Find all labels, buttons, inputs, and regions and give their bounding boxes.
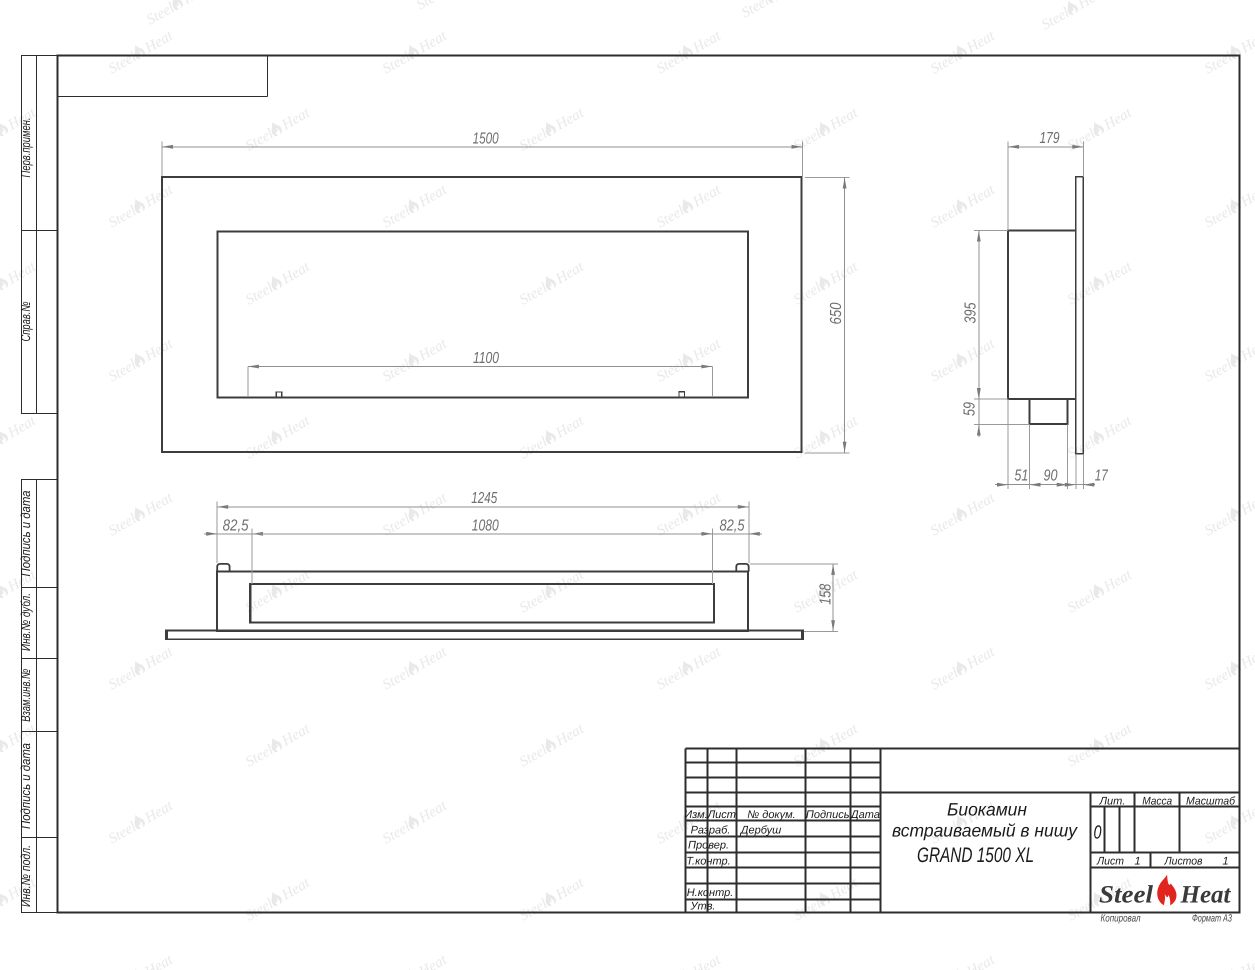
svg-text:Разраб.: Разраб. xyxy=(691,824,731,836)
svg-text:Утв.: Утв. xyxy=(690,901,716,913)
svg-text:Лист: Лист xyxy=(1096,855,1124,867)
svg-text:Формат А3: Формат А3 xyxy=(1192,913,1232,925)
svg-text:GRAND 1500 XL: GRAND 1500 XL xyxy=(917,844,1034,867)
svg-text:Биокамин: Биокамин xyxy=(947,800,1027,820)
svg-text:Дербуш: Дербуш xyxy=(739,824,782,836)
svg-text:Справ.№: Справ.№ xyxy=(18,302,33,342)
svg-text:82,5: 82,5 xyxy=(720,518,745,535)
svg-text:1: 1 xyxy=(1134,855,1140,867)
svg-text:Н.контр.: Н.контр. xyxy=(687,887,734,899)
svg-text:Перв.примен.: Перв.примен. xyxy=(18,118,33,178)
svg-text:Heat: Heat xyxy=(1180,882,1232,909)
svg-text:650: 650 xyxy=(828,302,845,324)
svg-text:51: 51 xyxy=(1014,467,1028,484)
svg-text:Масштаб: Масштаб xyxy=(1186,796,1236,808)
svg-text:Лит.: Лит. xyxy=(1099,796,1126,808)
svg-text:Подпись: Подпись xyxy=(806,809,850,821)
svg-text:17: 17 xyxy=(1095,467,1109,484)
svg-text:1500: 1500 xyxy=(473,131,499,148)
svg-text:Провер.: Провер. xyxy=(688,840,729,852)
svg-text:158: 158 xyxy=(818,584,835,605)
svg-text:Т.контр.: Т.контр. xyxy=(686,855,730,867)
svg-text:Взам.инв.№: Взам.инв.№ xyxy=(18,669,33,722)
svg-text:82,5: 82,5 xyxy=(223,518,249,535)
svg-text:Инв.№ подл.: Инв.№ подл. xyxy=(18,845,33,907)
svg-text:Steel: Steel xyxy=(1099,882,1153,909)
svg-text:Копировал: Копировал xyxy=(1101,913,1141,925)
svg-text:1245: 1245 xyxy=(471,490,497,507)
svg-text:Листов: Листов xyxy=(1164,855,1203,867)
svg-text:179: 179 xyxy=(1040,130,1060,147)
svg-text:Дата: Дата xyxy=(849,809,880,821)
svg-text:Подпись и дата: Подпись и дата xyxy=(18,743,33,829)
svg-text:встраиваемый в нишу: встраиваемый в нишу xyxy=(892,821,1078,841)
svg-text:Инв.№ дубл.: Инв.№ дубл. xyxy=(18,593,33,651)
svg-text:Масса: Масса xyxy=(1142,796,1172,808)
svg-text:0: 0 xyxy=(1094,823,1102,844)
svg-text:1: 1 xyxy=(1222,855,1228,867)
svg-text:395: 395 xyxy=(962,302,979,323)
svg-text:Подпись и дата: Подпись и дата xyxy=(18,491,33,577)
svg-text:1100: 1100 xyxy=(473,350,499,367)
svg-text:1080: 1080 xyxy=(472,518,499,535)
svg-text:59: 59 xyxy=(962,402,979,416)
svg-text:Лист: Лист xyxy=(707,809,736,821)
svg-text:Изм.: Изм. xyxy=(684,809,707,821)
svg-text:90: 90 xyxy=(1044,467,1058,484)
svg-text:№ докум.: № докум. xyxy=(747,809,795,821)
